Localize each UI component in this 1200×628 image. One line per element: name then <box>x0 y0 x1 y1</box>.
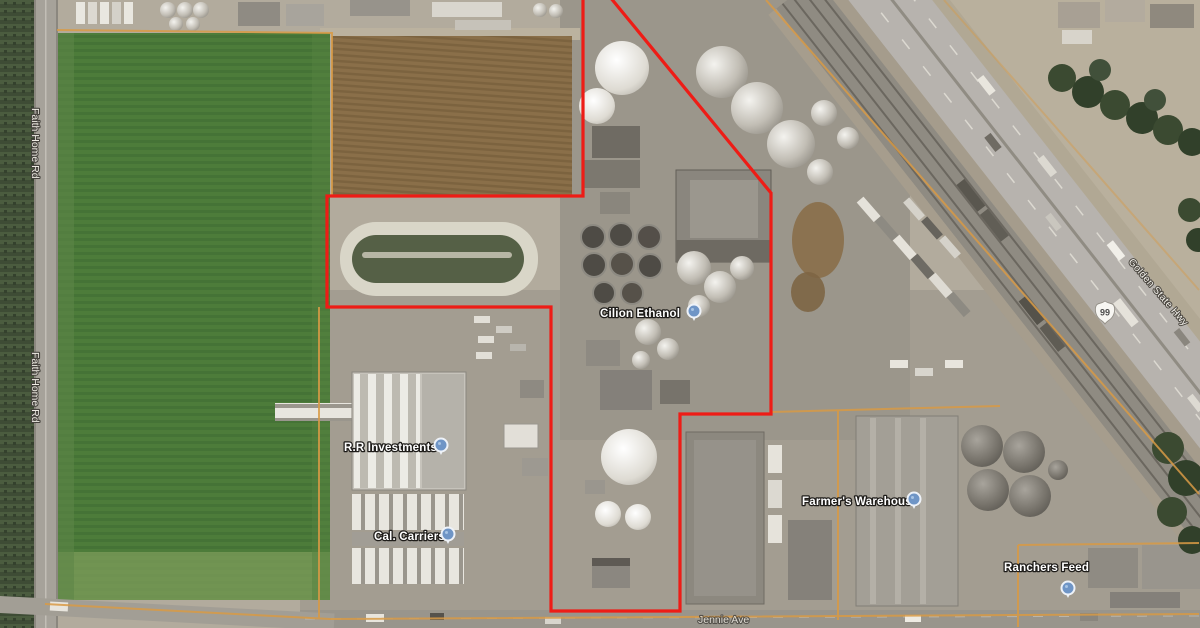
dock-trailers-row <box>352 494 464 530</box>
dirt-field <box>332 36 572 196</box>
place-label[interactable]: Ranchers Feed <box>1004 562 1089 574</box>
green-field <box>58 33 330 600</box>
office-building <box>504 424 538 448</box>
svg-text:99: 99 <box>1100 308 1110 318</box>
road-label-faith-home-rd-bottom: Faith Home Rd <box>29 352 41 423</box>
map-canvas: 99 Faith Home Rd Faith Home Rd Jennie Av… <box>0 0 1200 628</box>
place-label[interactable]: R.R Investments <box>344 442 437 454</box>
satellite-map[interactable]: 99 Faith Home Rd Faith Home Rd Jennie Av… <box>0 0 1200 628</box>
process-building <box>676 170 771 262</box>
place-label[interactable]: Farmer's Warehouse <box>802 496 918 508</box>
faith-home-road <box>34 0 58 628</box>
road-label-faith-home-rd-top: Faith Home Rd <box>29 108 41 179</box>
orchard-strip <box>0 0 34 628</box>
place-label[interactable]: Cal. Carriers <box>374 531 445 543</box>
place-label[interactable]: Cilion Ethanol <box>600 308 680 320</box>
settling-pond <box>340 222 538 296</box>
road-label-jennie-ave: Jennie Ave <box>698 614 749 626</box>
white-dome-tank <box>595 41 649 95</box>
dock-trailers-row <box>352 548 464 584</box>
